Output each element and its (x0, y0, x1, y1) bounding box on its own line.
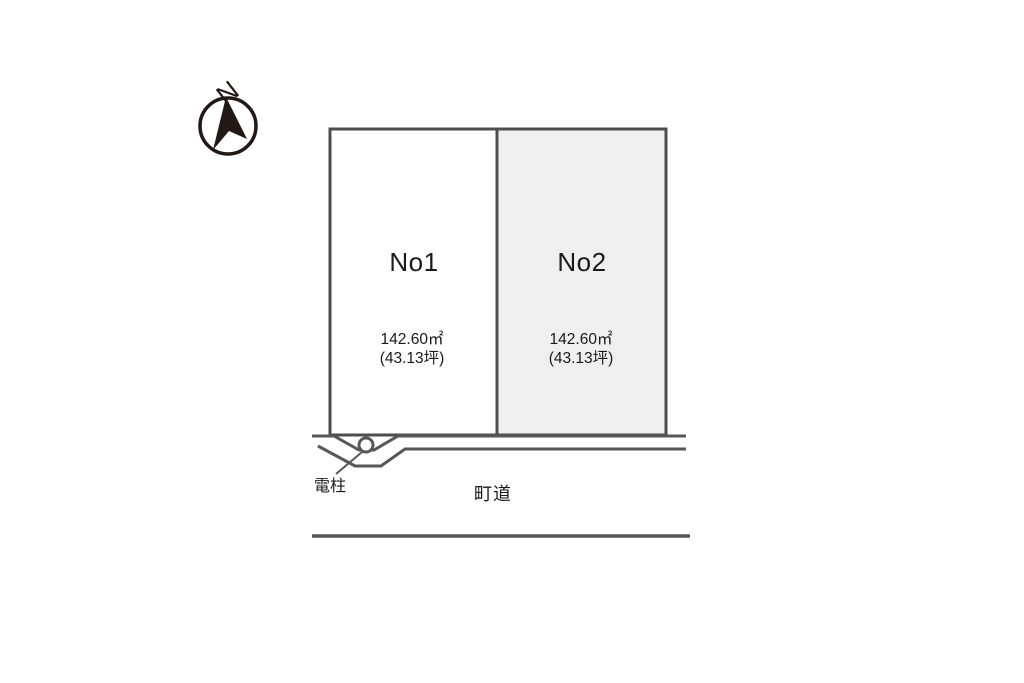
lot-no2-label: No2 (557, 247, 606, 277)
utility-pole-label: 電柱 (314, 477, 346, 495)
site-plan-page: N No1 142.60㎡ (43.13坪) No2 142.60㎡ (43.1… (0, 0, 1024, 683)
utility-pole-leader-line (336, 452, 362, 474)
lot-no2-area-tsubo: (43.13坪) (549, 349, 614, 367)
lot-no1-area-tsubo: (43.13坪) (380, 349, 445, 367)
north-compass: N (200, 75, 256, 154)
north-label: N (211, 75, 245, 111)
lot-no2-area-sqm: 142.60㎡ (550, 330, 613, 348)
lot-no1-label: No1 (389, 247, 438, 277)
site-plan-diagram: N No1 142.60㎡ (43.13坪) No2 142.60㎡ (43.1… (0, 0, 1024, 683)
lot-no1-area-sqm: 142.60㎡ (381, 330, 444, 348)
lots-group: No1 142.60㎡ (43.13坪) No2 142.60㎡ (43.13坪… (330, 129, 666, 435)
lot-no2-area (497, 129, 666, 435)
road-label: 町道 (474, 484, 512, 504)
utility-pole-icon (359, 438, 373, 452)
